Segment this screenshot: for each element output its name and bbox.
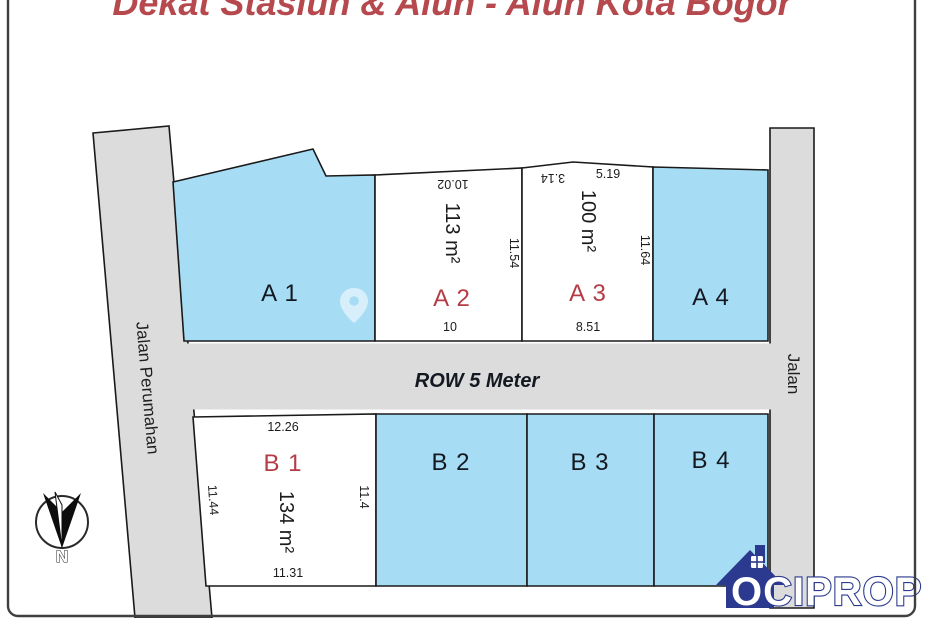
plot-a3-dim-top-left: 3.14 bbox=[541, 171, 565, 185]
plot-a2-dim-bottom: 10 bbox=[443, 320, 457, 334]
plot-b1-dim-left: 11.44 bbox=[205, 484, 221, 515]
site-plan-canvas: A 1 A 2 113 m² 10.02 10 11.54 A 3 100 m²… bbox=[0, 0, 927, 618]
plot-b1-dim-right: 11.4 bbox=[357, 485, 371, 508]
plot-b1-dim-top: 12.26 bbox=[267, 420, 298, 434]
road-middle-label: ROW 5 Meter bbox=[415, 370, 541, 392]
north-arrow-icon: N bbox=[36, 492, 88, 566]
site-plan-svg: A 1 A 2 113 m² 10.02 10 11.54 A 3 100 m²… bbox=[0, 0, 927, 618]
plot-a3-area: 100 m² bbox=[577, 190, 599, 253]
page-title: Dekat Stasiun & Alun - Alun Kota Bogor bbox=[112, 0, 793, 23]
plot-b4-label: B 4 bbox=[691, 447, 730, 474]
plot-b3-label: B 3 bbox=[570, 449, 609, 476]
plot-a3-dim-right: 11.64 bbox=[638, 235, 652, 265]
plot-a2-dim-right: 11.54 bbox=[507, 238, 521, 268]
road-right-label: Jalan bbox=[784, 354, 803, 395]
plot-b3 bbox=[527, 414, 654, 586]
plot-a4-label: A 4 bbox=[692, 284, 730, 311]
plot-a2-area: 113 m² bbox=[441, 203, 463, 264]
plot-b1-dim-bottom: 11.31 bbox=[273, 566, 303, 580]
logo: OCIPROP bbox=[716, 545, 922, 614]
plot-a3-dim-bottom: 8.51 bbox=[576, 320, 600, 334]
plot-a1-label: A 1 bbox=[261, 280, 299, 307]
plot-b2-label: B 2 bbox=[431, 449, 470, 476]
plot-b2 bbox=[376, 414, 527, 586]
plot-b1-area: 134 m² bbox=[275, 491, 297, 554]
north-letter: N bbox=[56, 547, 68, 566]
plot-a2-label: A 2 bbox=[433, 285, 471, 312]
logo-text: OCIPROP bbox=[731, 570, 922, 614]
plot-b1-label: B 1 bbox=[263, 450, 302, 477]
plot-a3-label: A 3 bbox=[569, 280, 607, 307]
plot-a3-dim-top-right: 5.19 bbox=[596, 167, 620, 181]
plot-a2-dim-top: 10.02 bbox=[437, 177, 468, 191]
plot-a4 bbox=[653, 167, 768, 341]
